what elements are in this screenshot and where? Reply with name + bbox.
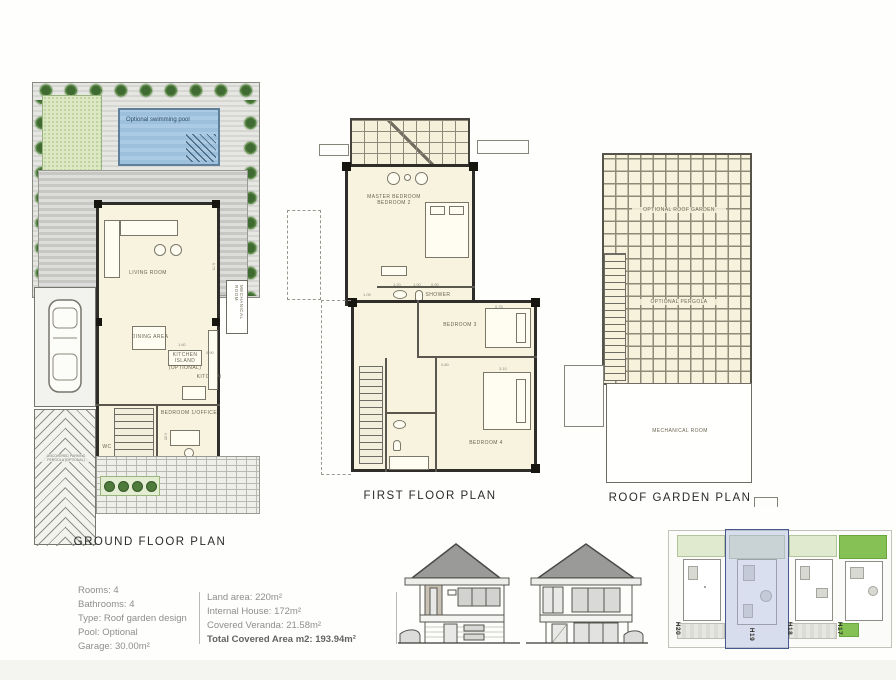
plot-garden-bright <box>839 535 887 559</box>
dim-120f: 1.20 <box>393 282 401 287</box>
partition <box>435 358 437 472</box>
plot-house <box>683 559 721 621</box>
plot-room <box>688 566 698 580</box>
bedroom-office-label: BEDROOM 1/OFFICE <box>160 410 218 416</box>
info-bathrooms: Bathrooms: 4 <box>78 598 196 612</box>
plot-h19: H19 <box>725 529 789 651</box>
side-table-icon <box>404 174 411 181</box>
wall-pier <box>212 200 220 208</box>
sofa-2 <box>120 220 178 236</box>
info-type: Type: Roof garden design <box>78 612 196 626</box>
footprint-below-dashed <box>321 300 351 475</box>
elevation-front <box>398 536 520 646</box>
bed-3 <box>485 308 531 348</box>
roof-edge-right <box>477 140 529 154</box>
plant-icon <box>118 481 129 492</box>
kitchen-counter <box>208 330 218 390</box>
garage <box>34 287 96 407</box>
plant-icon <box>104 481 115 492</box>
pillow <box>430 206 445 215</box>
wall-pier <box>342 162 351 171</box>
mechanical-room-ground: MECHANICAL ROOM <box>226 280 248 334</box>
wall-pier <box>469 162 478 171</box>
entry-door <box>444 624 457 643</box>
louver-box <box>464 625 484 631</box>
partition <box>417 300 419 358</box>
plant-icon <box>146 481 157 492</box>
bed-master <box>425 202 469 258</box>
plot-house <box>795 559 833 621</box>
kitchen-island-label: KITCHEN ISLAND (OPTIONAL) <box>166 352 204 371</box>
partition <box>385 412 437 414</box>
pillow <box>516 313 526 343</box>
mechanical-room-roof: MECHANICAL ROOM <box>606 383 752 483</box>
plot-garden <box>677 535 725 557</box>
car-silhouette <box>624 631 643 643</box>
mechanical-room-label: MECHANICAL ROOM <box>234 285 244 333</box>
plot-label-h18: H18 <box>786 622 793 635</box>
sofa <box>104 220 120 278</box>
plot-room <box>816 588 828 598</box>
slab-band <box>420 615 504 622</box>
dim-310: 3.10 <box>499 366 507 371</box>
pool-steps <box>186 134 216 162</box>
dim-090: 0.90 <box>206 350 214 355</box>
plot-h18: H18 <box>789 533 837 645</box>
plot-h17: H17 <box>837 533 889 645</box>
dining-label: DINING AREA <box>130 334 170 340</box>
swimming-pool: Optional swimming pool <box>118 108 220 166</box>
ground-stair-dashed <box>287 210 321 300</box>
ramp-hatch-left <box>35 410 65 546</box>
ground-floor-title: GROUND FLOOR PLAN <box>60 536 240 548</box>
info-internal: Internal House: 172m² <box>207 605 392 619</box>
info-divider-right <box>396 592 397 644</box>
kitchen-island-label-1: KITCHEN ISLAND <box>173 352 198 364</box>
partition <box>385 358 387 472</box>
ground-floor-plan: Optional swimming pool LIVING ROOM DININ… <box>30 78 262 548</box>
parking-ramp: UNCOVERED PARKING PERGOLA (OPTIONAL) <box>34 409 96 545</box>
roof-rear <box>538 544 634 578</box>
kitchen-island-label-2: (OPTIONAL) <box>169 365 202 371</box>
floor-plan-sheet: Optional swimming pool LIVING ROOM DININ… <box>0 0 896 680</box>
plot-room <box>850 567 864 579</box>
plot-label-h17: H17 <box>836 622 843 635</box>
bench <box>381 266 407 276</box>
info-veranda: Covered Veranda: 21.58m² <box>207 619 392 633</box>
glass-doors <box>574 623 618 643</box>
master-label-2: BEDROOM 2 <box>377 200 411 206</box>
pillow <box>516 379 526 423</box>
wall-pier <box>531 298 540 307</box>
upper-window <box>458 588 500 606</box>
eave-band <box>531 578 641 585</box>
dim-080f: 0.80 <box>441 362 449 367</box>
wall-pier <box>94 200 102 208</box>
roof-annex-left <box>564 365 604 427</box>
roof-garden-label: OPTIONAL ROOF GARDEN <box>632 207 726 213</box>
first-floor-plan: MASTER BEDROOM BEDROOM 2 SHOWER BEDROOM … <box>285 110 545 515</box>
wall-pier <box>531 464 540 473</box>
info-total-area: Total Covered Area m2: 193.94m² <box>207 633 392 647</box>
elevation-rear <box>526 536 648 646</box>
plot-room <box>704 586 706 588</box>
dim-075: 0.75 <box>495 304 503 309</box>
balcony-band <box>540 615 632 622</box>
plot-label-h19: H19 <box>748 628 755 641</box>
info-garage: Garage: 30.00m² <box>78 640 196 654</box>
bathtub <box>389 456 429 470</box>
dim-160: 1.60 <box>178 342 186 347</box>
eave-band <box>405 578 509 585</box>
armchair-icon <box>415 172 428 185</box>
sink-icon <box>393 290 407 299</box>
info-right-column: Land area: 220m² Internal House: 172m² C… <box>207 591 392 647</box>
planter <box>100 476 160 496</box>
pergola-label: OPTIONAL PERGOLA <box>634 299 724 305</box>
armchair-icon <box>170 244 182 256</box>
info-land-area: Land area: 220m² <box>207 591 392 605</box>
large-window <box>572 588 620 612</box>
sink-icon <box>393 420 406 429</box>
dim-675: 6.75 <box>211 263 216 271</box>
desk <box>170 430 200 446</box>
page-footer-band <box>0 660 896 680</box>
toilet-icon <box>393 440 401 451</box>
site-plan: H20 H19 H18 <box>668 530 892 648</box>
plot-label-h20: H20 <box>674 622 681 635</box>
cooktop <box>182 386 206 400</box>
plot-garden <box>789 535 837 557</box>
dim-090f: 0.90 <box>431 282 439 287</box>
master-bedroom-label: MASTER BEDROOM BEDROOM 2 <box>357 194 431 207</box>
highlighted-plot-outline <box>725 529 789 649</box>
master-label-1: MASTER BEDROOM <box>367 194 421 200</box>
roof-edge-left <box>319 144 349 156</box>
plot-driveway <box>789 623 837 639</box>
plant-icon <box>132 481 143 492</box>
mechanical-room-roof-label: MECHANICAL ROOM <box>645 428 715 434</box>
pillow <box>449 206 464 215</box>
stairs-roof <box>604 253 626 381</box>
info-rooms: Rooms: 4 <box>78 584 196 598</box>
parking-label-2: PERGOLA (OPTIONAL) <box>47 458 85 462</box>
living-room-label: LIVING ROOM <box>118 270 178 276</box>
partition <box>377 286 475 288</box>
roof-garden-plan: OPTIONAL ROOF GARDEN OPTIONAL PERGOLA ME… <box>560 145 790 510</box>
veranda-pergola <box>350 118 470 166</box>
bed-4 <box>483 372 531 430</box>
plot-room <box>800 566 810 580</box>
stairs-first <box>359 366 383 464</box>
wc-label: WC <box>100 444 114 450</box>
info-left-column: Rooms: 4 Bathrooms: 4 Type: Roof garden … <box>78 584 196 654</box>
car-top-view-icon <box>45 296 85 396</box>
louver-box <box>464 634 484 640</box>
bedroom3-label: BEDROOM 3 <box>435 322 485 328</box>
wall-pier <box>212 318 220 326</box>
plot-house <box>845 561 883 621</box>
roof-garden-title: ROOF GARDEN PLAN <box>590 492 770 504</box>
shower-label: SHOWER <box>423 292 453 298</box>
dim-105: 1.05 <box>363 292 371 297</box>
property-info: Rooms: 4 Bathrooms: 4 Type: Roof garden … <box>78 584 408 654</box>
parking-label: UNCOVERED PARKING PERGOLA (OPTIONAL) <box>41 454 91 462</box>
pool-label: Optional swimming pool <box>126 117 196 125</box>
armchair-icon <box>387 172 400 185</box>
info-divider-left <box>199 592 200 644</box>
bedroom4-label: BEDROOM 4 <box>461 440 511 446</box>
first-floor-title: FIRST FLOOR PLAN <box>345 490 515 502</box>
roof-front <box>412 544 500 578</box>
plot-driveway <box>677 623 725 639</box>
ramp-hatch-right <box>65 410 95 546</box>
info-pool: Pool: Optional <box>78 626 196 640</box>
plot-room <box>868 586 878 596</box>
dim-365: 3.65 <box>163 433 168 441</box>
dim-100f: 1.00 <box>413 282 421 287</box>
partition <box>96 404 220 406</box>
lawn <box>42 95 102 171</box>
plot-h20: H20 <box>677 533 725 645</box>
armchair-icon <box>154 244 166 256</box>
